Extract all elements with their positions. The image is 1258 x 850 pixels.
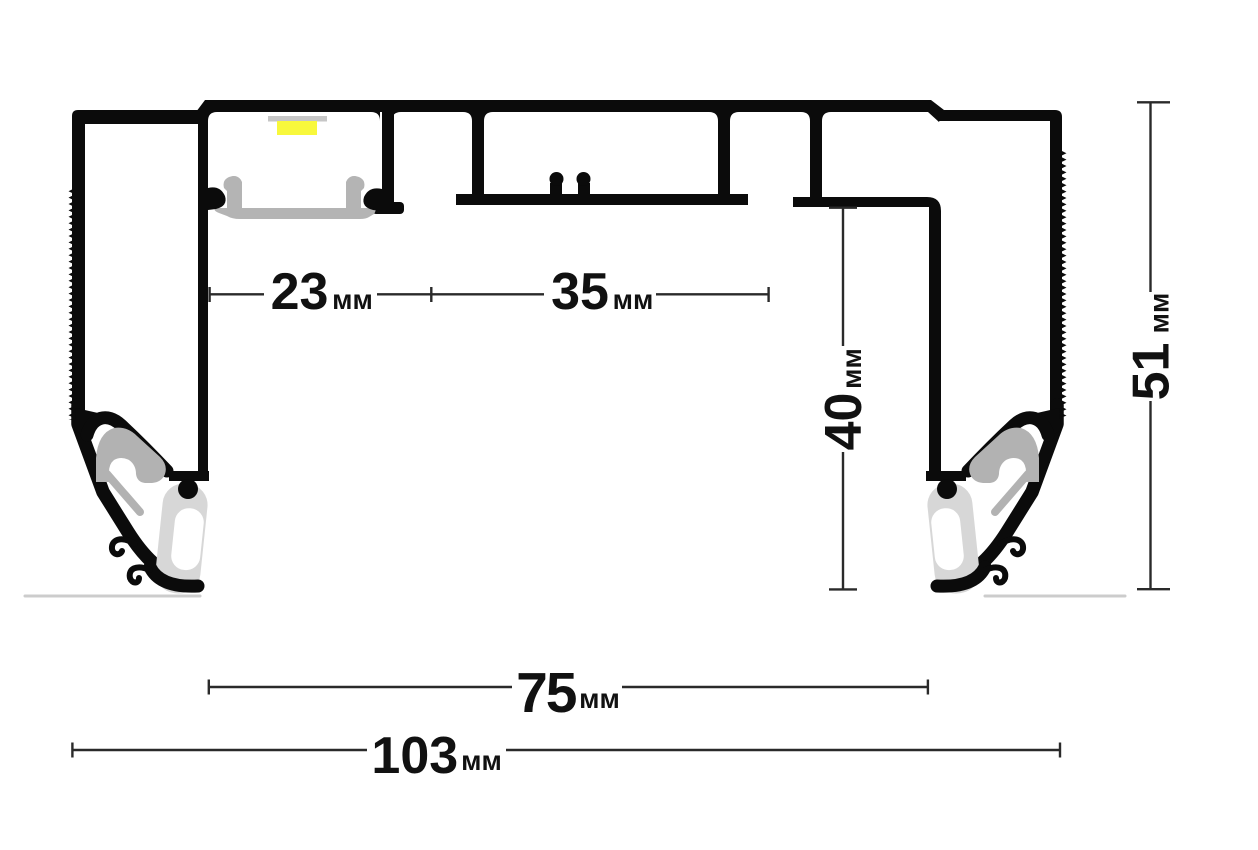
svg-text:51: 51 [1123, 343, 1181, 401]
svg-text:40: 40 [815, 393, 873, 451]
svg-text:23: 23 [271, 263, 329, 321]
svg-text:мм: мм [613, 284, 654, 315]
svg-text:35: 35 [551, 263, 609, 321]
svg-text:мм: мм [461, 745, 502, 776]
svg-text:мм: мм [579, 683, 620, 714]
svg-text:75: 75 [516, 661, 577, 725]
svg-text:мм: мм [836, 348, 867, 389]
svg-text:мм: мм [332, 284, 373, 315]
svg-text:103: 103 [371, 727, 458, 785]
svg-text:мм: мм [1144, 293, 1175, 334]
